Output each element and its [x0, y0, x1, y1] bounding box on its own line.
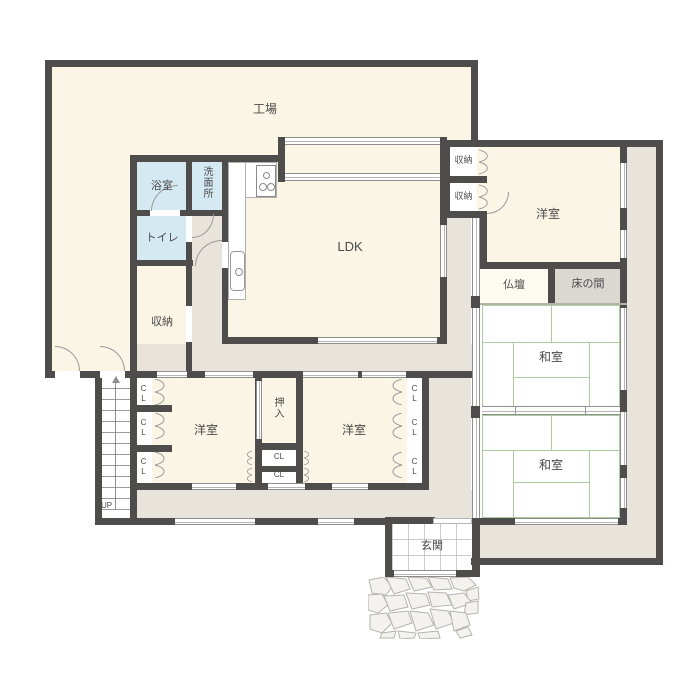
wall — [443, 176, 487, 183]
wall — [296, 371, 303, 450]
label-western-s: 洋室 — [332, 424, 376, 438]
oshiire-sliding-door — [256, 381, 262, 439]
tatami-line — [482, 305, 483, 408]
bifold-door-icon — [478, 184, 491, 210]
tatami-line — [589, 342, 590, 408]
wall — [422, 371, 429, 490]
label-closet: CL — [139, 457, 147, 477]
storage-west-door-gap — [186, 306, 192, 342]
window-bedroom-north-3 — [303, 371, 358, 378]
label-tokonoma: 床の間 — [561, 278, 615, 291]
wall — [130, 155, 137, 378]
sink-icon — [230, 251, 245, 291]
corridor-genkan-hall — [392, 490, 472, 518]
tatami-line — [589, 450, 590, 518]
window-bay-north — [285, 137, 440, 145]
wall — [471, 558, 663, 565]
window-east-5 — [620, 478, 627, 508]
wall — [137, 260, 193, 266]
tatami-line — [551, 305, 552, 342]
bifold-door-icon — [302, 451, 312, 465]
tatami-line — [513, 482, 589, 483]
wall — [385, 518, 392, 577]
label-western-sw: 洋室 — [184, 424, 228, 438]
bifold-door-icon — [478, 149, 491, 175]
window-east-3 — [620, 308, 627, 390]
stove-burner — [259, 183, 267, 191]
fusuma-divider — [482, 406, 620, 415]
wall — [472, 518, 480, 577]
tatami-line — [513, 450, 514, 518]
room-factory-left — [52, 155, 130, 371]
stairs-up-arrow-icon — [112, 376, 120, 383]
label-storage-east-1: 収納 — [449, 155, 478, 165]
floor-plan-canvas: 工場 浴室 洗面所 トイレ 収納 LDK 収納 収納 洋室 仏壇 床の間 和室 … — [0, 0, 700, 700]
wall — [477, 262, 627, 269]
bifold-door-icon — [244, 468, 254, 482]
fusuma-tick — [515, 406, 516, 415]
label-storage-east-2: 収納 — [449, 191, 478, 201]
window-outer-south-1 — [175, 518, 255, 525]
wall — [130, 445, 172, 452]
wall — [471, 60, 478, 147]
window-east-1 — [620, 163, 627, 208]
bifold-door-icon — [387, 379, 405, 405]
wall — [130, 405, 172, 412]
stove-icon — [256, 165, 276, 197]
wall — [222, 155, 285, 162]
wall — [385, 517, 435, 524]
label-genkan: 玄関 — [413, 540, 451, 553]
bifold-door-icon — [302, 468, 312, 482]
east-wing-shoji-band — [472, 218, 480, 518]
genkan-entry-door — [394, 570, 456, 577]
window-bay-south — [285, 173, 440, 181]
wall — [656, 140, 663, 565]
label-closet: CL — [410, 457, 418, 477]
staircase — [102, 378, 130, 518]
label-storage-west: 収納 — [141, 316, 183, 329]
wall — [255, 443, 303, 450]
label-toilet: トイレ — [139, 232, 185, 245]
label-japanese-2: 和室 — [529, 459, 573, 473]
bifold-door-icon — [387, 452, 405, 478]
corridor-south — [137, 490, 429, 518]
factory-door-gap-1 — [55, 371, 80, 378]
wall — [130, 155, 228, 162]
tatami-line — [482, 415, 483, 518]
bifold-door-icon — [152, 379, 170, 405]
label-factory: 工場 — [240, 103, 290, 117]
corridor-east-upper — [447, 218, 471, 344]
label-closet-mid-2: CL — [268, 470, 290, 479]
bifold-door-icon — [387, 413, 405, 439]
window-bedroom-north-4 — [362, 371, 406, 378]
window-bedroom-north-2 — [205, 371, 253, 378]
window-ldk-south — [318, 337, 437, 344]
window-bedroom-south-3 — [332, 483, 368, 490]
window-japanese2-south — [515, 518, 618, 525]
stove-burner — [267, 183, 275, 191]
stove-burner — [263, 172, 270, 179]
label-closet: CL — [410, 418, 418, 438]
window-outer-south-2 — [318, 518, 354, 525]
window-bedroom-south-1 — [192, 483, 236, 490]
wall — [548, 269, 555, 305]
wall-nub — [471, 296, 480, 308]
label-butsudan: 仏壇 — [496, 279, 532, 292]
wall — [278, 137, 285, 182]
stone-path — [368, 577, 480, 639]
genkan-step — [433, 518, 472, 524]
label-washroom: 洗面所 — [201, 166, 211, 214]
wall — [186, 155, 192, 378]
label-oshiire: 押入 — [272, 397, 282, 431]
label-stairs-up: UP — [101, 501, 125, 510]
label-closet: CL — [139, 384, 147, 404]
fusuma-tick — [585, 406, 586, 415]
engawa-south — [472, 525, 656, 558]
engawa-east — [627, 147, 656, 558]
tatami-line — [551, 415, 552, 450]
window-ldk-east — [440, 225, 447, 277]
wall — [255, 450, 262, 483]
wall — [45, 60, 52, 378]
window-east-4 — [620, 412, 627, 465]
tatami-line — [482, 450, 620, 451]
window-bedroom-north-1 — [157, 371, 187, 378]
wall-nub — [471, 406, 480, 418]
label-closet-mid-1: CL — [268, 452, 290, 461]
bifold-door-icon — [244, 451, 254, 465]
bifold-door-icon — [152, 413, 170, 439]
bifold-door-icon — [152, 452, 170, 478]
stairs-guide-line — [115, 382, 116, 510]
label-closet: CL — [139, 418, 147, 438]
sink-drain — [235, 268, 243, 276]
tatami-line — [482, 342, 620, 343]
label-bathroom: 浴室 — [140, 180, 184, 193]
tatami-line — [513, 342, 514, 408]
window-bedroom-south-2 — [268, 483, 305, 490]
wall — [479, 213, 487, 269]
tatami-line — [513, 377, 589, 378]
tokonoma-edge-line — [479, 303, 627, 305]
label-japanese-1: 和室 — [529, 351, 573, 365]
label-ldk: LDK — [318, 240, 382, 255]
window-east-2 — [620, 230, 627, 258]
wall — [443, 140, 663, 147]
label-western-ne: 洋室 — [526, 208, 570, 222]
label-closet: CL — [410, 384, 418, 404]
wall — [45, 60, 478, 67]
